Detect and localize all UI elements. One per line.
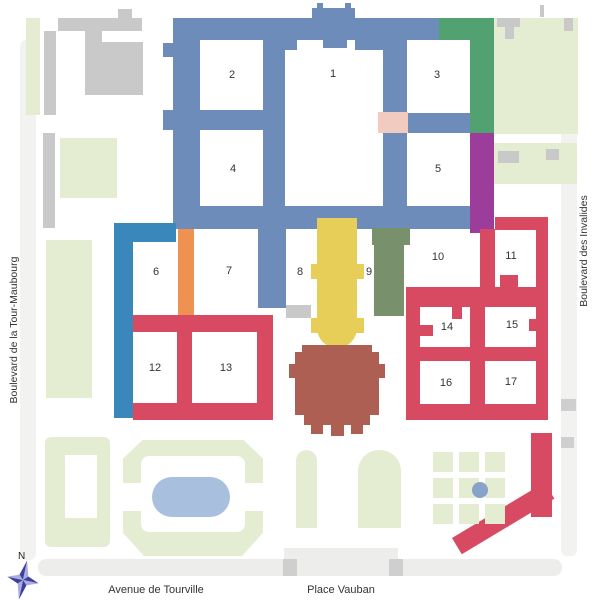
dome-notch-ne [372,345,379,352]
courtyard-number-12: 12 [149,362,161,374]
court14-tab-left [420,325,433,336]
mid-wing-east [406,113,470,133]
small-gray-annex [286,305,311,318]
court1-tab-left [285,40,297,50]
nw-building-stem [85,30,102,95]
mid-wing-west [200,110,263,130]
courtyard-number-5: 5 [435,163,441,175]
compass-north-label: N [18,551,25,562]
se-block-left-wall [406,288,420,420]
se-garden-square-3 [485,452,505,472]
courtyard-number-4: 4 [230,163,236,175]
ne-lawn-lower [489,143,577,184]
northeast-wing-green [439,18,494,40]
sage-wall-tab [372,228,410,245]
courtyard-number-3: 3 [434,69,440,81]
dome-foot-a [311,424,323,434]
sw-garden-inner [65,455,97,518]
courtyard-number-14: 14 [441,321,453,333]
west-annex-bar [114,223,176,242]
courtyard-number-1: 1 [330,68,336,80]
se-garden-fountain [472,482,488,498]
church-buttress-b [356,264,364,279]
north-pavilion-inner-stub [323,40,347,48]
street-vauban-stub [284,548,398,559]
nw-building-tab [118,9,132,18]
east-wall-green [470,40,494,133]
invalides-site-map: N Avenue de Tourville Place Vauban Boule… [0,0,600,600]
dome-notch-nw [295,345,302,352]
west-lawn-lower [46,240,92,398]
west-wall-tab-mid [163,110,173,130]
se-block-mid-horizontal [420,347,538,361]
ne-building-b [505,27,514,39]
ne-building-a [497,18,520,27]
se-garden-square-6 [485,478,505,498]
north-pavilion-knob-left [317,3,323,10]
compass-star [3,557,43,600]
west-lawn-upper [60,138,117,198]
street-label-boulevard-tour-maubourg: Boulevard de la Tour-Maubourg [8,257,20,404]
church-buttress-c [311,318,318,333]
west-gray-strip [43,133,55,228]
wall-court2-court1 [263,40,285,206]
sw-block-mid-wall [177,332,192,403]
nw-lawn-strip [26,18,40,115]
courtyard-number-8: 8 [297,266,303,278]
pink-pavilion [378,112,408,133]
dome-notch-sw [295,415,304,425]
sage-wall [374,245,404,316]
street-east-block-a [561,399,576,411]
east-wall-purple [470,133,494,233]
orange-wall [178,229,194,315]
dome-lawn-right [358,450,401,528]
courtyard-number-6: 6 [153,266,159,278]
crosswalk-right [389,559,403,576]
dome-notch-se [370,415,379,425]
courtyard-number-2: 2 [229,69,235,81]
street-label-boulevard-des-invalides: Boulevard des Invalides [578,195,590,307]
ne-lawn-upper [488,18,578,134]
esplanade-path-right [243,483,263,511]
church-buttress-d [356,318,364,333]
sw-block-top-wall [133,315,273,332]
se-garden-square-4 [433,478,453,498]
courtyard-number-17: 17 [505,376,517,388]
se-block-right-wall-upper [536,217,548,289]
nw-building-strip [44,31,56,115]
west-wall-tab-top [163,43,173,57]
dome-church [295,345,379,425]
crosswalk-left [283,559,297,576]
street-label-avenue-de-tourville: Avenue de Tourville [108,584,204,596]
court15-tab-right [529,319,538,331]
wall-west-of-court8 [258,229,286,308]
church-buttress-a [311,264,318,279]
court1-tab-right [355,40,383,50]
street-west [20,40,36,560]
courtyard-number-10: 10 [432,251,444,263]
wall-court10-court11 [480,229,495,288]
street-label-place-vauban: Place Vauban [307,584,375,596]
court14-tab-top [452,307,462,319]
courtyard-number-7: 7 [226,265,232,277]
west-annex-wall [114,242,133,418]
se-garden-square-1 [433,452,453,472]
north-pavilion-knob-right [345,3,351,10]
se-block-bottom-wall [406,404,548,420]
street-south [38,559,562,576]
ne-building-f [546,149,559,160]
nw-building-block [102,42,143,95]
esplanade-pond [152,477,230,517]
dome-foot-c [351,424,363,434]
courtyard-number-16: 16 [440,377,452,389]
compass-rose: N [2,546,44,600]
ne-building-d [540,5,544,17]
courtyard-number-9: 9 [366,266,372,278]
courtyard-number-13: 13 [220,362,232,374]
west-wing-wall [173,40,200,206]
se-garden-square-9 [485,504,505,524]
dome-lawn-left [296,450,317,528]
se-block-right-wall-lower [536,288,548,420]
church-nave [317,218,357,348]
ne-building-c [564,18,573,31]
courtyard-number-15: 15 [506,319,518,331]
se-garden-square-2 [459,452,479,472]
dome-foot-b [331,424,344,436]
dome-bump-right [379,364,385,378]
courtyard-number-11: 11 [505,250,516,262]
se-garden-square-7 [433,504,453,524]
ne-building-e [498,151,519,163]
north-wing [173,18,440,40]
street-east-block-b [561,437,574,448]
esplanade-path-left [123,483,143,511]
sw-block-bottom-wall [133,403,273,420]
sw-block-right-wall [257,332,273,403]
se-garden-square-8 [459,504,479,524]
dome-bump-left [289,364,295,378]
